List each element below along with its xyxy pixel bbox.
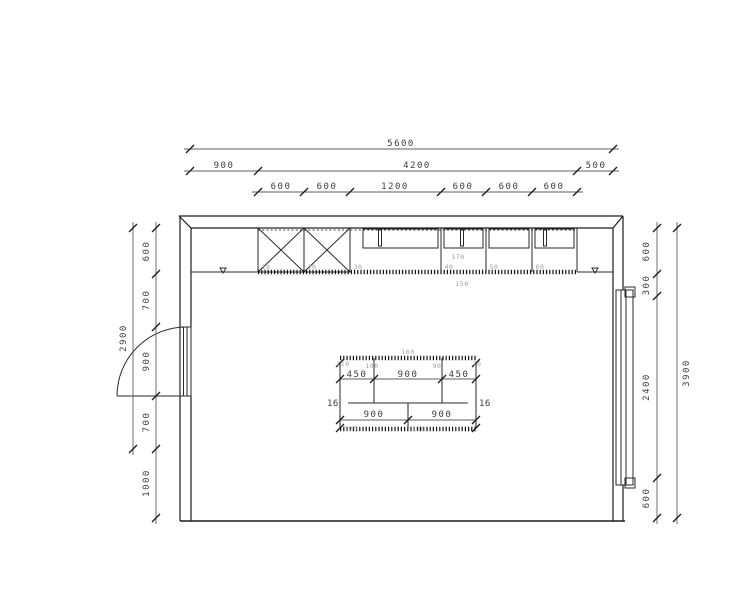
dim-row-cabinet-segments: 600 600 1200 600 600 600 (252, 182, 583, 196)
island-label-110: 110 (336, 360, 349, 368)
island-dim-900-top: 900 (398, 370, 419, 380)
floor-plan-canvas: 10 20 30 40 50 60 170 150 160 110 100 90… (0, 0, 729, 614)
cabinet-label-170: 170 (451, 253, 464, 261)
dim-500: 500 (586, 161, 607, 171)
cabinet-label-20: 20 (308, 263, 317, 271)
dim-3900: 3900 (682, 359, 692, 387)
island-label-130: 130 (412, 425, 425, 433)
dim-left-600-top: 600 (142, 241, 152, 262)
dim-600-5: 600 (544, 182, 565, 192)
cabinet-label-50: 50 (490, 263, 499, 271)
dim-600-2: 600 (317, 182, 338, 192)
island-label-90: 90 (433, 362, 442, 370)
cabinet-label-40: 40 (445, 263, 454, 271)
window (616, 287, 635, 488)
dim-4200: 4200 (403, 161, 431, 171)
handle-icon (379, 230, 382, 246)
dim-600-1: 600 (271, 182, 292, 192)
island-label-120: 120 (344, 425, 357, 433)
island-dim-900-bl: 900 (364, 410, 385, 420)
island-dim-900-br: 900 (432, 410, 453, 420)
dim-right-chain: 600 300 2400 600 (642, 222, 661, 524)
dim-row-width-segments: 900 4200 500 (184, 161, 619, 175)
island: 160 110 100 90 70 450 900 450 16 16 900 … (327, 348, 491, 433)
dim-2900: 2900 (119, 324, 129, 352)
dim-600-3: 600 (453, 182, 474, 192)
cabinet-label-10: 10 (262, 263, 271, 271)
dim-row-overall-width: 5600 (184, 139, 619, 153)
handle-icon (544, 230, 547, 246)
dim-5600: 5600 (387, 139, 415, 149)
cabinet-run: 10 20 30 40 50 60 170 150 (191, 228, 613, 288)
door-leaf (180, 327, 191, 396)
cabinet-label-30: 30 (354, 263, 363, 271)
dim-left-chain: 600 700 900 700 1000 (142, 222, 160, 524)
dim-right-600-bottom: 600 (642, 488, 652, 509)
dim-right-2400: 2400 (642, 373, 652, 401)
dim-right-600-top: 600 (642, 241, 652, 262)
dim-600-4: 600 (499, 182, 520, 192)
island-label-100: 100 (365, 362, 378, 370)
dim-left-900-door: 900 (142, 351, 152, 372)
dim-900: 900 (214, 161, 235, 171)
dim-left-700-upper: 700 (142, 290, 152, 311)
dim-left-overall: 2900 (119, 222, 137, 455)
room-walls (179, 216, 625, 521)
island-panel-16-left: 16 (327, 399, 339, 409)
cabinet-label-150: 150 (455, 280, 468, 288)
dim-left-700-lower: 700 (142, 412, 152, 433)
island-panel-16-right: 16 (479, 399, 491, 409)
dim-right-overall: 3900 (673, 222, 692, 524)
dim-left-1000: 1000 (142, 469, 152, 497)
island-label-160: 160 (401, 348, 414, 356)
handle-icon (461, 230, 464, 246)
cabinet-label-60: 60 (536, 263, 545, 271)
island-dim-450-left: 450 (347, 370, 368, 380)
cabinet-fronts (363, 229, 574, 248)
dim-1200: 1200 (381, 182, 409, 192)
island-dim-450-right: 450 (449, 370, 470, 380)
floor-plan-drawing: 10 20 30 40 50 60 170 150 160 110 100 90… (0, 0, 729, 614)
dim-right-300: 300 (642, 275, 652, 296)
island-label-70: 70 (473, 360, 482, 368)
